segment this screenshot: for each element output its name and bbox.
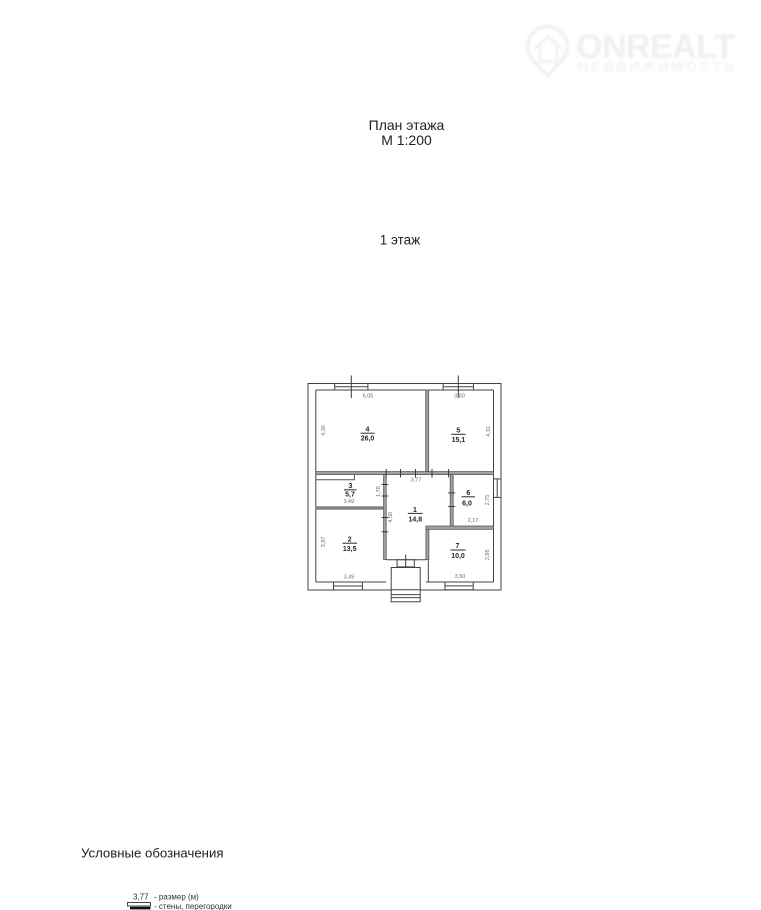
svg-text:14,8: 14,8 xyxy=(408,516,422,523)
svg-text:3,49: 3,49 xyxy=(343,499,354,505)
svg-text:1,78: 1,78 xyxy=(376,486,382,497)
svg-text:5,7: 5,7 xyxy=(345,492,355,499)
svg-text:4,50: 4,50 xyxy=(388,512,394,523)
svg-text:1: 1 xyxy=(413,507,417,514)
svg-text:- размер (м): - размер (м) xyxy=(154,893,199,902)
svg-text:13,5: 13,5 xyxy=(343,546,357,553)
svg-text:10,0: 10,0 xyxy=(451,553,465,560)
svg-text:2,86: 2,86 xyxy=(485,549,491,560)
svg-text:3,77: 3,77 xyxy=(411,477,422,483)
svg-text:26,0: 26,0 xyxy=(361,436,375,443)
svg-text:Условные обозначения: Условные обозначения xyxy=(81,846,223,861)
svg-text:М 1:200: М 1:200 xyxy=(381,132,432,148)
svg-text:3: 3 xyxy=(348,483,352,490)
svg-text:4,31: 4,31 xyxy=(486,426,492,437)
svg-text:6: 6 xyxy=(466,490,470,497)
svg-text:3,50: 3,50 xyxy=(455,574,466,580)
svg-text:3,87: 3,87 xyxy=(321,537,327,548)
svg-text:3,49: 3,49 xyxy=(344,575,355,581)
svg-text:План этажа: План этажа xyxy=(369,117,445,133)
svg-text:2,75: 2,75 xyxy=(485,495,491,506)
svg-text:5: 5 xyxy=(456,428,460,435)
svg-text:6,0: 6,0 xyxy=(462,501,472,508)
svg-text:3,50: 3,50 xyxy=(454,394,465,400)
svg-text:7: 7 xyxy=(455,543,459,550)
svg-text:15,1: 15,1 xyxy=(452,437,466,444)
svg-text:2: 2 xyxy=(348,537,352,544)
svg-text:3,77: 3,77 xyxy=(133,893,149,902)
svg-text:- стены, перегородки: - стены, перегородки xyxy=(154,902,232,910)
svg-text:2,17: 2,17 xyxy=(468,518,479,524)
svg-text:4,30: 4,30 xyxy=(321,425,327,436)
svg-text:1 этаж: 1 этаж xyxy=(380,233,420,248)
svg-text:4: 4 xyxy=(366,427,370,434)
svg-text:НЕДВИЖИМОСТЬ: НЕДВИЖИМОСТЬ xyxy=(578,58,737,74)
svg-text:6,05: 6,05 xyxy=(363,394,374,400)
